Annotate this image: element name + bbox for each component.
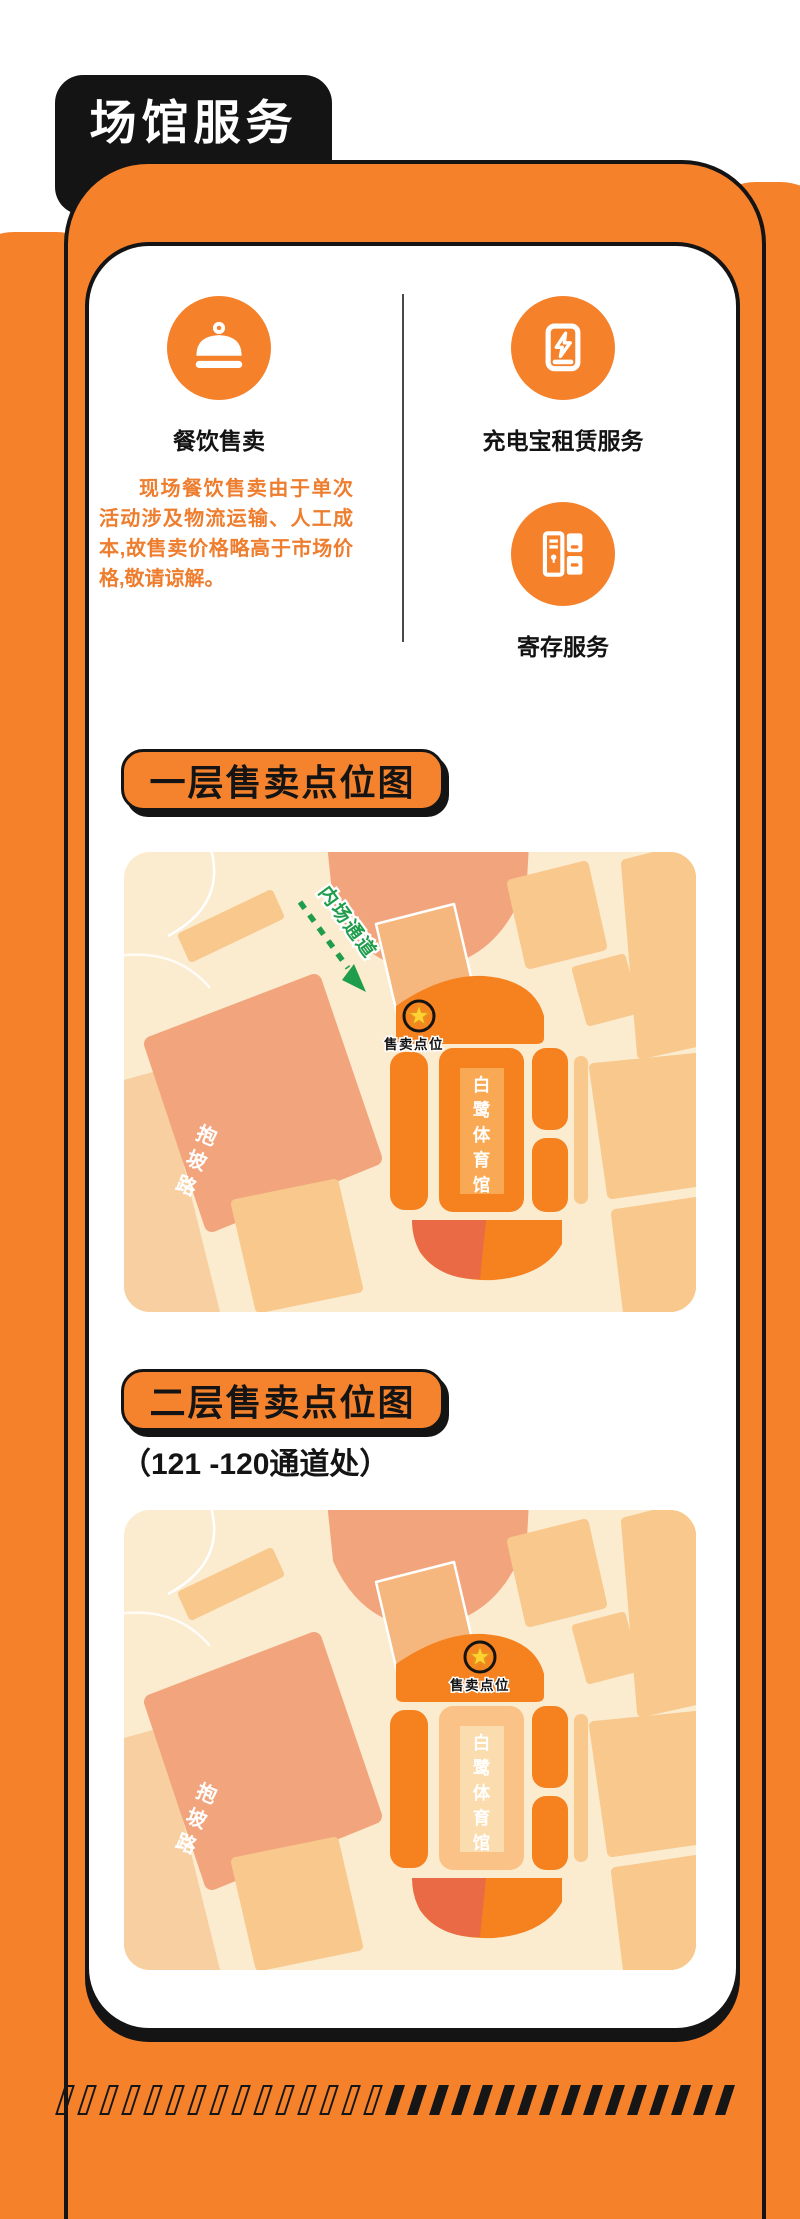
page-title: 场馆服务	[90, 84, 298, 153]
dash-mark	[231, 2085, 251, 2115]
dash-mark	[583, 2085, 603, 2115]
column-divider	[402, 294, 404, 642]
venue-services-card: 餐饮售卖 现场餐饮售卖由于单次活动涉及物流运输、人工成本,故售卖价格略高于市场价…	[85, 242, 740, 2032]
dash-mark	[495, 2085, 515, 2115]
dash-mark	[561, 2085, 581, 2115]
dash-mark	[187, 2085, 207, 2115]
dash-mark	[605, 2085, 625, 2115]
dash-mark	[165, 2085, 185, 2115]
dash-mark	[473, 2085, 493, 2115]
dash-mark	[693, 2085, 713, 2115]
poster-page: 场馆服务 餐饮售卖 现场餐饮售卖由于单次活动涉及物流运输、人工成本,故售卖价格略…	[0, 0, 800, 2219]
dash-mark	[121, 2085, 141, 2115]
dash-mark	[671, 2085, 691, 2115]
dash-mark	[209, 2085, 229, 2115]
dash-mark	[253, 2085, 273, 2115]
dash-mark	[407, 2085, 427, 2115]
floor1-map: 白鹭体育馆 抱坡路 内场通道 售卖	[124, 852, 696, 1312]
dash-mark	[341, 2085, 361, 2115]
section-header-floor1: 一层售卖点位图	[121, 749, 444, 811]
floor1-map-svg: 白鹭体育馆 抱坡路 内场通道 售卖	[124, 852, 696, 1312]
dash-mark	[363, 2085, 383, 2115]
powerbank-service-badge	[511, 296, 615, 400]
floor2-map-svg: 白鹭体育馆 抱坡路 售卖点位	[124, 1510, 696, 1970]
dash-mark	[275, 2085, 295, 2115]
dash-mark	[429, 2085, 449, 2115]
footer-dashes	[60, 2085, 730, 2115]
dash-mark	[143, 2085, 163, 2115]
cloche-icon	[188, 317, 250, 379]
section-header-floor2: 二层售卖点位图	[121, 1369, 444, 1431]
storage-service-label: 寄存服务	[429, 628, 697, 662]
food-service-note: 现场餐饮售卖由于单次活动涉及物流运输、人工成本,故售卖价格略高于市场价格,敬请谅…	[99, 474, 353, 594]
locker-icon	[532, 523, 594, 585]
dash-mark	[627, 2085, 647, 2115]
dash-mark	[297, 2085, 317, 2115]
section-subtitle-floor2: （121 -120通道处）	[121, 1439, 389, 1483]
stadium-name-label: 白鹭体育馆	[473, 1075, 492, 1195]
dash-mark	[539, 2085, 559, 2115]
storage-service-badge	[511, 502, 615, 606]
power-bank-icon	[532, 317, 594, 379]
food-service-label: 餐饮售卖	[85, 422, 353, 456]
dash-mark	[649, 2085, 669, 2115]
stadium-name-label: 白鹭体育馆	[473, 1733, 492, 1853]
food-service-badge	[167, 296, 271, 400]
dash-mark	[517, 2085, 537, 2115]
dash-mark	[451, 2085, 471, 2115]
dash-mark	[319, 2085, 339, 2115]
dash-mark	[77, 2085, 97, 2115]
dash-mark	[385, 2085, 405, 2115]
marker-label: 售卖点位	[449, 1677, 510, 1693]
floor2-map: 白鹭体育馆 抱坡路 售卖点位	[124, 1510, 696, 1970]
dash-mark	[99, 2085, 119, 2115]
powerbank-service-label: 充电宝租赁服务	[429, 422, 697, 456]
marker-label: 售卖点位	[383, 1036, 444, 1052]
